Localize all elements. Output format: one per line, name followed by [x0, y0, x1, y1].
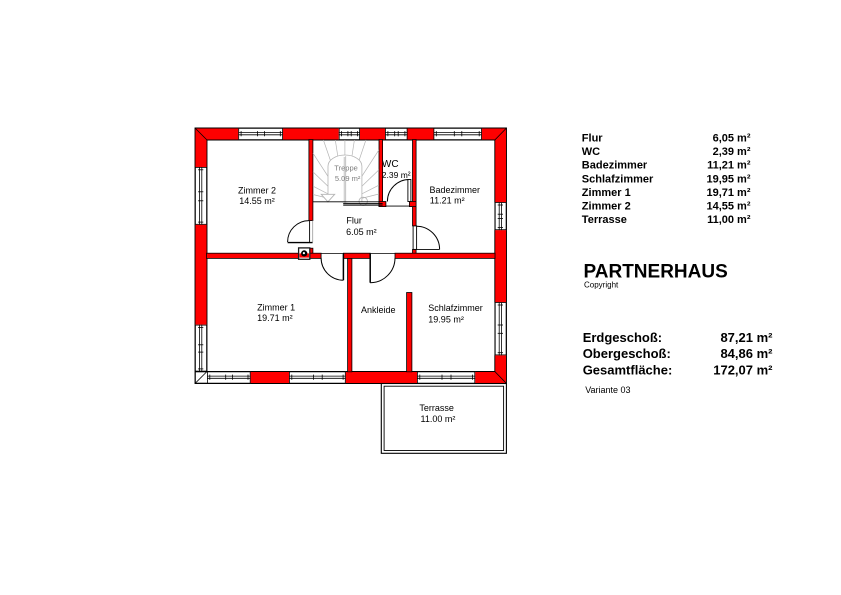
svg-text:Ankleide: Ankleide: [361, 305, 396, 315]
svg-text:11.00 m²: 11.00 m²: [421, 414, 456, 424]
svg-text:87,21 m²: 87,21 m²: [720, 330, 773, 345]
svg-text:Badezimmer: Badezimmer: [582, 160, 648, 172]
svg-text:Flur: Flur: [582, 132, 603, 144]
svg-text:19.71 m²: 19.71 m²: [257, 313, 293, 323]
svg-text:Flur: Flur: [346, 216, 362, 226]
svg-text:Erdgeschoß:: Erdgeschoß:: [583, 330, 662, 345]
svg-text:6,05 m²: 6,05 m²: [713, 132, 751, 144]
svg-text:Zimmer 1: Zimmer 1: [582, 187, 631, 199]
svg-text:2.39 m²: 2.39 m²: [382, 170, 411, 180]
svg-text:Gesamtfläche:: Gesamtfläche:: [583, 362, 673, 377]
svg-text:19,95 m²: 19,95 m²: [706, 173, 750, 185]
svg-text:Zimmer 2: Zimmer 2: [582, 201, 631, 213]
svg-text:Badezimmer: Badezimmer: [430, 185, 481, 195]
svg-text:Zimmer 2: Zimmer 2: [238, 185, 276, 195]
svg-text:Treppe: Treppe: [334, 163, 358, 172]
svg-text:6.05 m²: 6.05 m²: [346, 227, 377, 237]
svg-text:11,21 m²: 11,21 m²: [707, 160, 751, 172]
svg-text:Zimmer 1: Zimmer 1: [257, 302, 295, 312]
svg-text:Terrasse: Terrasse: [582, 214, 627, 226]
svg-text:Obergeschoß:: Obergeschoß:: [583, 346, 671, 361]
svg-text:11,00 m²: 11,00 m²: [707, 214, 751, 226]
svg-text:WC: WC: [382, 159, 399, 170]
svg-text:19,71 m²: 19,71 m²: [706, 187, 750, 199]
svg-text:84,86 m²: 84,86 m²: [720, 346, 773, 361]
svg-text:Variante 03: Variante 03: [585, 385, 630, 395]
svg-text:14.55 m²: 14.55 m²: [239, 196, 275, 206]
svg-text:PARTNERHAUS: PARTNERHAUS: [584, 262, 728, 283]
svg-text:172,07 m²: 172,07 m²: [713, 362, 773, 377]
svg-text:19.95 m²: 19.95 m²: [428, 315, 464, 325]
svg-text:Terrasse: Terrasse: [419, 403, 454, 413]
svg-text:Schlafzimmer: Schlafzimmer: [428, 303, 483, 313]
svg-text:14,55 m²: 14,55 m²: [706, 201, 750, 213]
svg-text:WC: WC: [582, 146, 600, 158]
svg-text:Copyright: Copyright: [584, 281, 619, 290]
svg-text:5.09 m²: 5.09 m²: [335, 174, 361, 183]
svg-text:11.21 m²: 11.21 m²: [430, 195, 465, 205]
svg-text:2,39 m²: 2,39 m²: [713, 146, 751, 158]
svg-text:Schlafzimmer: Schlafzimmer: [582, 173, 654, 185]
